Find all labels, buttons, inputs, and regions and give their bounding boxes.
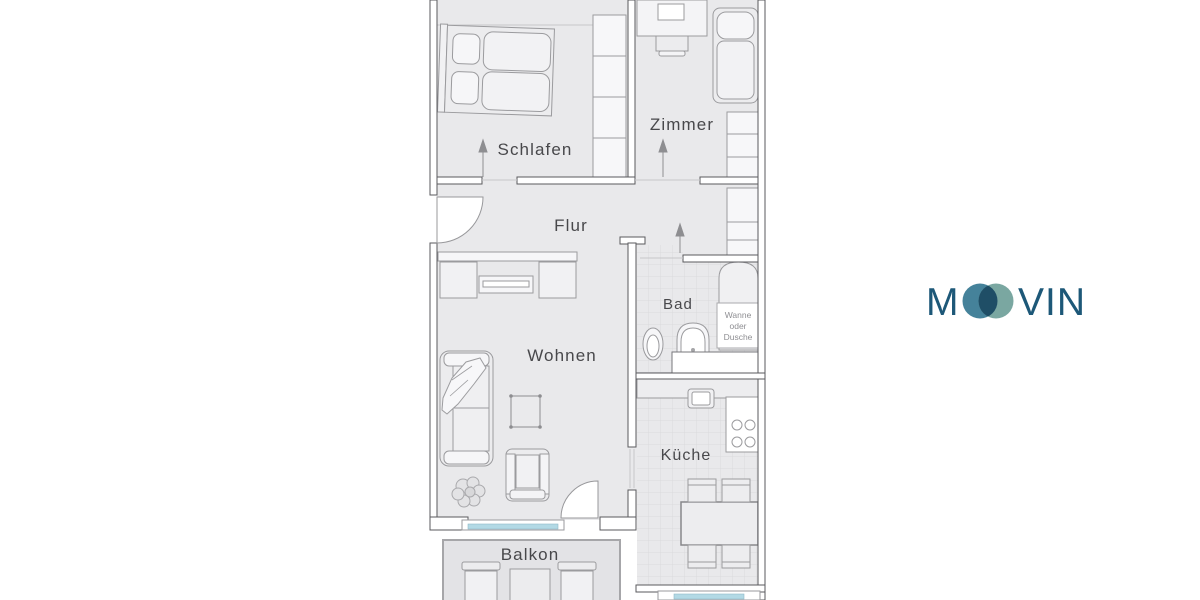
wall-segment: [636, 373, 765, 379]
page: Schlafen Zimmer Flur Bad Wohnen Küche Ba…: [0, 0, 1200, 600]
logo-letter-vin: VIN: [1018, 281, 1086, 324]
stove: [726, 397, 758, 452]
desk: [637, 0, 707, 36]
room-label-wohnen: Wohnen: [527, 346, 597, 365]
zimmer-wardrobe: [727, 112, 758, 177]
wall-segment: [517, 177, 635, 184]
wall-segment: [600, 517, 636, 530]
wall-segment: [758, 0, 765, 600]
room-label-zimmer: Zimmer: [650, 115, 714, 134]
dining-chair: [722, 545, 750, 568]
wall-segment: [628, 490, 636, 520]
dining-table: [681, 502, 758, 545]
armchair: [506, 449, 549, 501]
balcony-table: [510, 569, 550, 600]
double-bed: [437, 24, 554, 116]
room-label-schlafen: Schlafen: [498, 140, 573, 159]
wall-segment: [430, 243, 437, 530]
vanity-counter: [672, 352, 758, 374]
window-living: [462, 520, 564, 530]
wall-segment: [437, 177, 482, 184]
window-kitchen: [658, 591, 760, 600]
bath-note-line3: Dusche: [724, 332, 753, 342]
room-label-balkon: Balkon: [501, 545, 560, 564]
single-bed: [713, 8, 758, 103]
bath-note-line1: Wanne: [725, 310, 752, 320]
dining-chair: [722, 479, 750, 502]
balcony-chair: [558, 562, 596, 600]
wall-segment: [628, 243, 636, 447]
schlafen-wardrobe: [593, 15, 626, 177]
room-label-kueche: Küche: [661, 447, 712, 464]
logo-letter-m: M: [926, 281, 960, 324]
room-label-flur: Flur: [554, 216, 588, 235]
sofa: [440, 351, 493, 466]
wall-segment: [700, 177, 758, 184]
bath-note-line2: oder: [729, 321, 746, 331]
coffee-table: [509, 394, 542, 429]
wall-segment: [683, 255, 758, 262]
moovin-logo: M VIN: [925, 279, 1085, 325]
tv: [479, 276, 533, 293]
balcony-chair: [462, 562, 500, 600]
room-label-bad: Bad: [663, 296, 693, 313]
kitchen-sink: [688, 389, 714, 408]
toilet: [643, 328, 663, 360]
hall-cabinet: [727, 188, 758, 255]
wall-segment: [628, 0, 635, 184]
dining-chair: [688, 545, 716, 568]
wall-segment: [430, 0, 437, 195]
dining-chair: [688, 479, 716, 502]
desk-chair: [656, 36, 688, 56]
